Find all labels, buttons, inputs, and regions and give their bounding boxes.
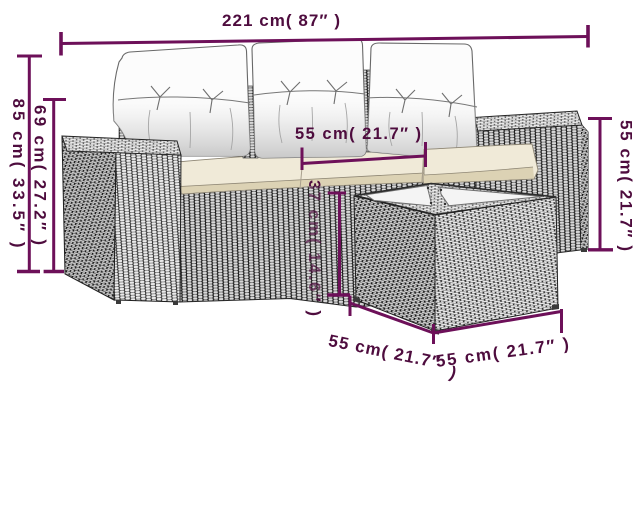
svg-text:55 cm( 21.7″ ): 55 cm( 21.7″ ) xyxy=(617,120,636,251)
svg-text:55 cm( 21.7″ ): 55 cm( 21.7″ ) xyxy=(295,125,421,143)
svg-text:69 cm( 27.2″ ): 69 cm( 27.2″ ) xyxy=(31,105,50,245)
svg-text:221 cm( 87″ ): 221 cm( 87″ ) xyxy=(222,11,340,30)
